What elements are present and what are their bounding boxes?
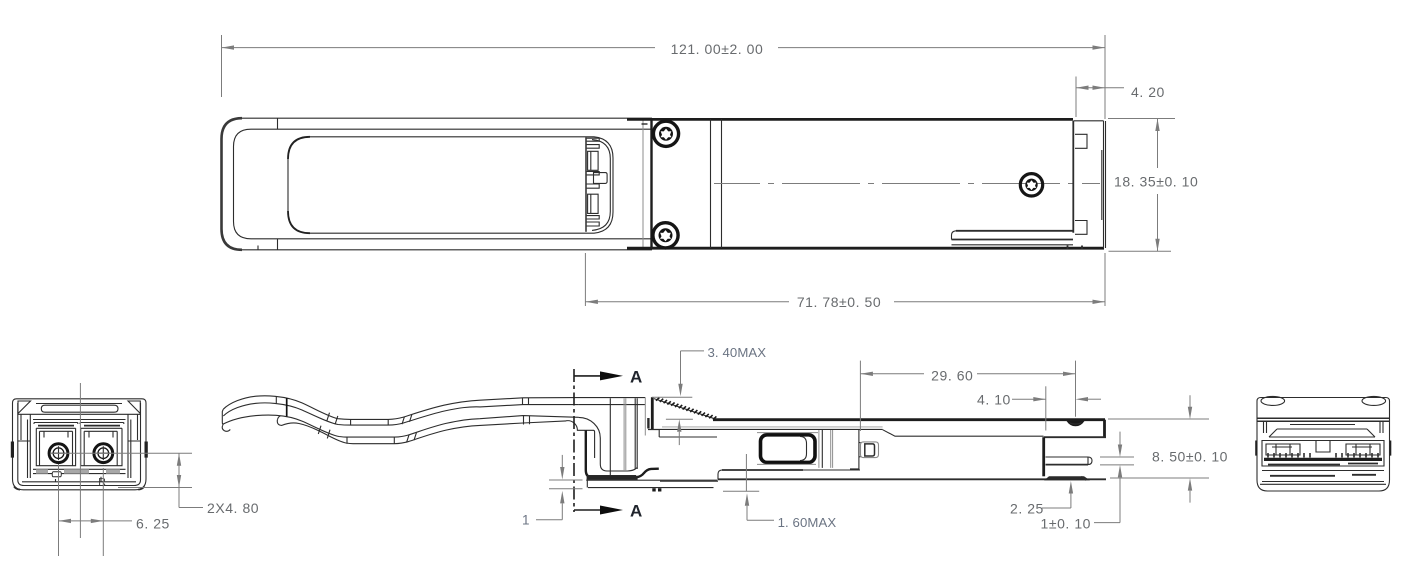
svg-text:71. 78±0. 50: 71. 78±0. 50 xyxy=(797,294,881,310)
svg-text:4. 10: 4. 10 xyxy=(977,392,1011,408)
svg-text:29. 60: 29. 60 xyxy=(931,367,973,383)
svg-text:A: A xyxy=(630,502,642,521)
svg-text:1±0. 10: 1±0. 10 xyxy=(1041,516,1091,532)
svg-text:3. 40MAX: 3. 40MAX xyxy=(708,345,767,360)
svg-text:121. 00±2. 00: 121. 00±2. 00 xyxy=(671,41,764,57)
svg-text:2. 25: 2. 25 xyxy=(1010,501,1044,517)
svg-text:6. 25: 6. 25 xyxy=(136,516,170,532)
svg-text:8. 50±0. 10: 8. 50±0. 10 xyxy=(1152,449,1228,465)
svg-text:18. 35±0. 10: 18. 35±0. 10 xyxy=(1114,174,1198,190)
svg-text:4. 20: 4. 20 xyxy=(1131,84,1165,100)
svg-text:1: 1 xyxy=(522,513,530,528)
svg-text:1. 60MAX: 1. 60MAX xyxy=(778,515,837,530)
svg-text:A: A xyxy=(630,368,642,387)
svg-text:2X4. 80: 2X4. 80 xyxy=(207,500,259,516)
